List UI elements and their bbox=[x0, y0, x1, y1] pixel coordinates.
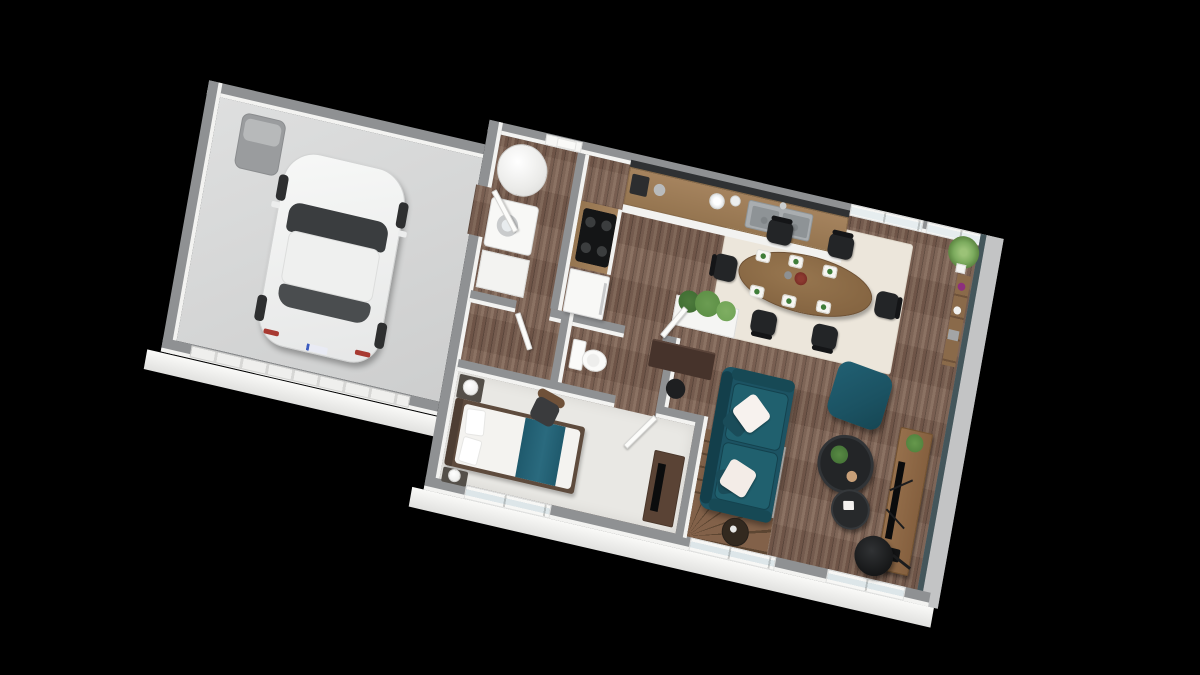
bed-pillow-1 bbox=[464, 408, 486, 437]
dining-chair-4 bbox=[810, 322, 839, 351]
dining-chair-5 bbox=[711, 252, 738, 283]
coffee-table-napkin bbox=[843, 501, 854, 510]
coffee-machine bbox=[629, 173, 650, 197]
dining-chair-3 bbox=[749, 308, 778, 337]
floor-plan-scene bbox=[0, 0, 1200, 675]
dining-chair-6 bbox=[873, 290, 900, 321]
corner-plant-pot bbox=[955, 263, 966, 274]
shelf-box bbox=[947, 329, 959, 341]
floor-plan bbox=[113, 49, 1023, 648]
fridge bbox=[563, 268, 611, 321]
wheelie-bin-lid bbox=[242, 118, 282, 148]
